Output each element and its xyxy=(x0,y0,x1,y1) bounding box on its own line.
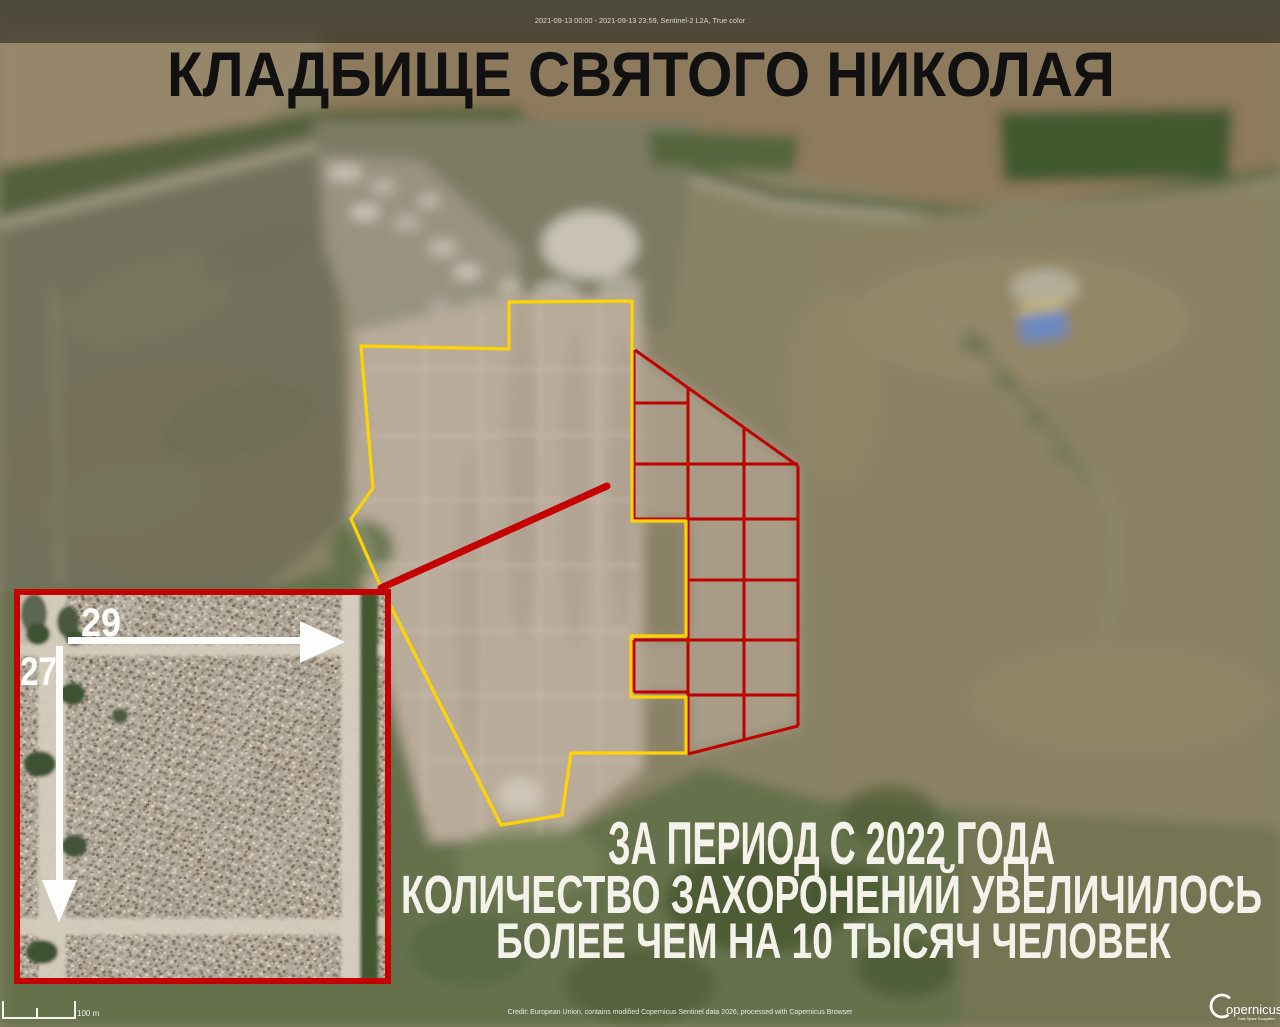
svg-text:100 m: 100 m xyxy=(77,1009,100,1018)
svg-text:27: 27 xyxy=(20,650,57,694)
svg-text:29: 29 xyxy=(81,601,121,645)
svg-text:opernicus: opernicus xyxy=(1226,1002,1280,1017)
svg-text:БОЛЕЕ ЧЕМ НА 10 ТЫСЯЧ ЧЕЛОВЕК: БОЛЕЕ ЧЕМ НА 10 ТЫСЯЧ ЧЕЛОВЕК xyxy=(496,913,1171,969)
svg-text:Data Space Ecosystem: Data Space Ecosystem xyxy=(1238,1017,1275,1021)
svg-text:Credit: European Union, contai: Credit: European Union, contains modifie… xyxy=(508,1009,853,1016)
svg-text:2021-09-13 00:00 - 2021-09-13: 2021-09-13 00:00 - 2021-09-13 23:59, Sen… xyxy=(535,16,746,25)
svg-text:КЛАДБИЩЕ СВЯТОГО НИКОЛАЯ: КЛАДБИЩЕ СВЯТОГО НИКОЛАЯ xyxy=(167,40,1115,110)
